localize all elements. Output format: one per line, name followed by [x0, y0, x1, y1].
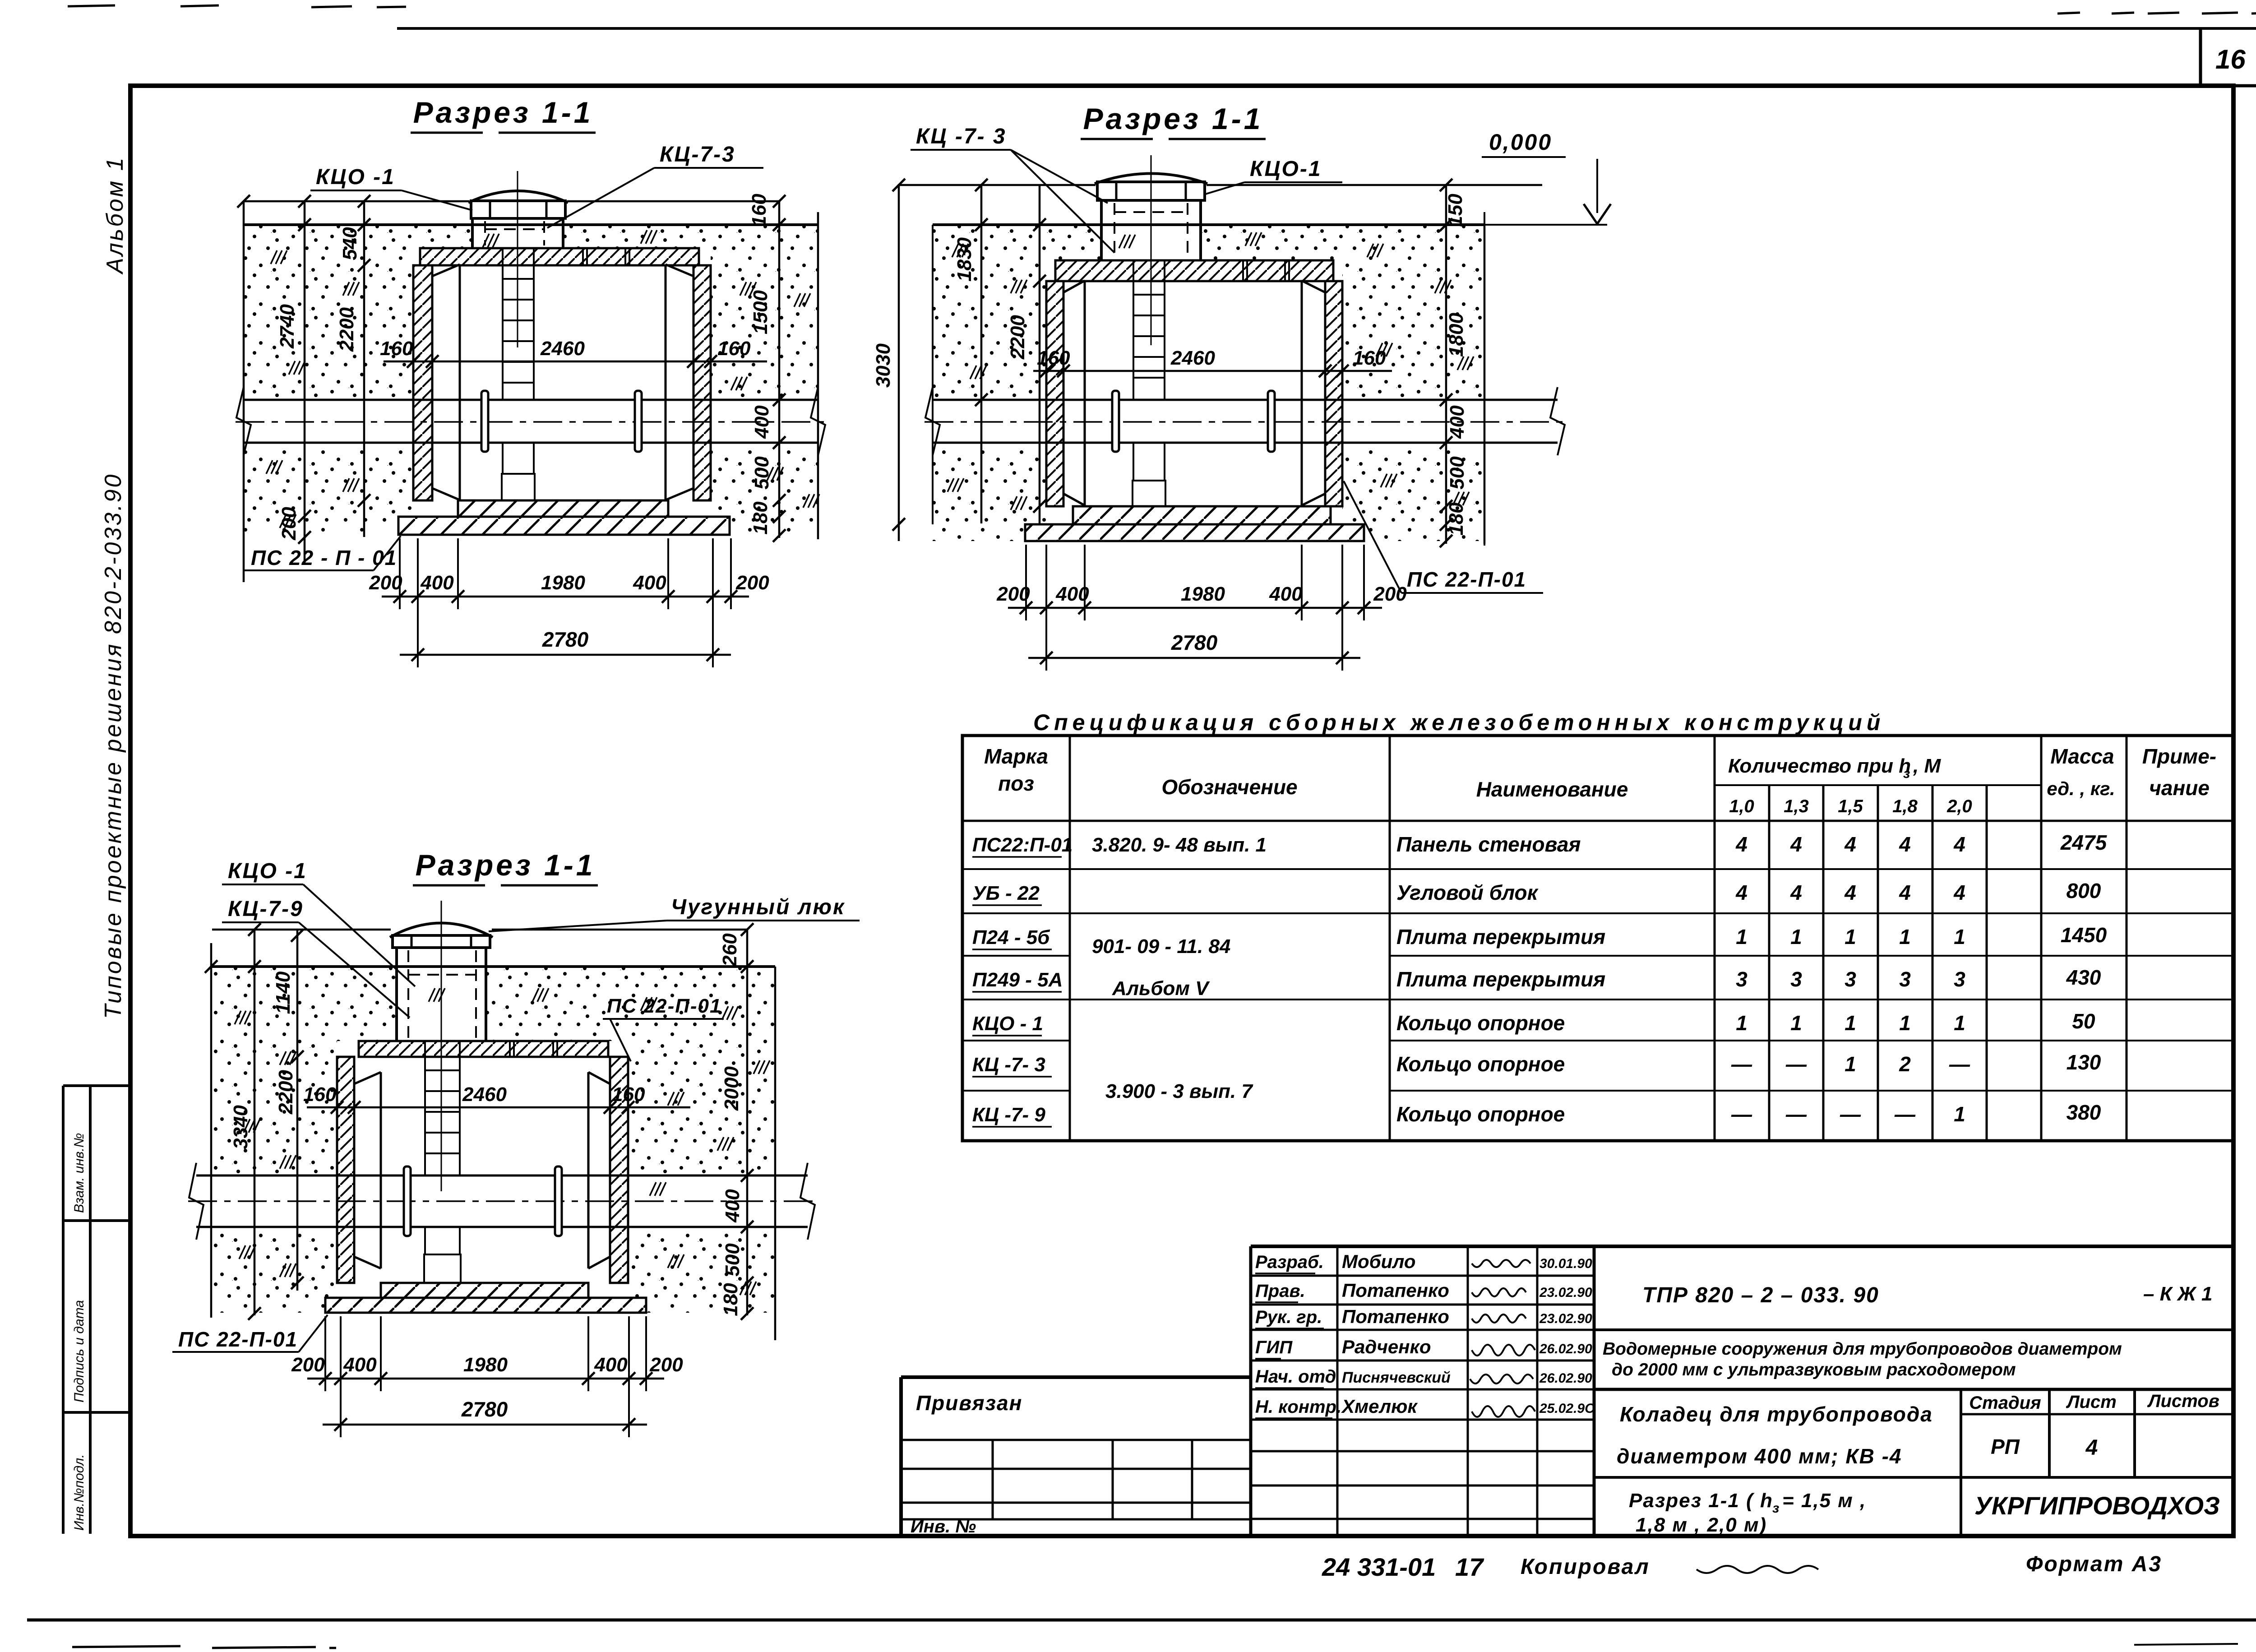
svg-text:1: 1: [1899, 925, 1911, 949]
svg-text:4: 4: [1735, 833, 1747, 856]
svg-text:КЦО -1: КЦО -1: [228, 859, 307, 883]
svg-text:1980: 1980: [1181, 583, 1225, 605]
svg-text:2780: 2780: [542, 628, 589, 651]
svg-text:Кольцо опорное: Кольцо опорное: [1396, 1102, 1565, 1126]
svg-text:—: —: [1840, 1102, 1861, 1126]
svg-text:4: 4: [2085, 1436, 2098, 1460]
svg-text:Панель стеновая: Панель стеновая: [1396, 833, 1581, 856]
svg-text:500: 500: [1446, 456, 1468, 490]
svg-text:Копировал: Копировал: [1521, 1555, 1650, 1579]
svg-text:400: 400: [420, 572, 454, 594]
svg-text:1: 1: [1954, 1011, 1965, 1035]
svg-text:1: 1: [1899, 1011, 1911, 1035]
svg-text:130: 130: [2066, 1050, 2101, 1074]
svg-text:50: 50: [2072, 1009, 2095, 1033]
svg-text:2780: 2780: [461, 1397, 508, 1421]
svg-text:1: 1: [1790, 925, 1802, 949]
svg-text:Прав.: Прав.: [1255, 1281, 1305, 1301]
svg-text:Плита перекрытия: Плита перекрытия: [1396, 967, 1605, 991]
svg-text:4: 4: [1790, 833, 1802, 856]
svg-text:1: 1: [1736, 1011, 1747, 1035]
svg-text:2460: 2460: [462, 1083, 507, 1106]
svg-text:КЦ-7-3: КЦ-7-3: [660, 143, 735, 167]
svg-text:200: 200: [1373, 583, 1407, 605]
svg-text:4: 4: [1953, 881, 1965, 904]
svg-text:1,8: 1,8: [1892, 796, 1918, 816]
svg-text:Разрез 1-1: Разрез 1-1: [413, 96, 593, 129]
svg-text:23.02.90: 23.02.90: [1539, 1285, 1592, 1300]
svg-text:Потапенко: Потапенко: [1342, 1280, 1449, 1301]
svg-text:400: 400: [1055, 583, 1089, 605]
svg-text:Кольцо опорное: Кольцо опорное: [1396, 1052, 1565, 1076]
svg-text:Угловой блок: Угловой блок: [1396, 881, 1539, 904]
svg-text:Подпись и дата: Подпись и дата: [72, 1300, 87, 1402]
svg-text:Инв.№подл.: Инв.№подл.: [72, 1454, 87, 1531]
svg-text:180: 180: [1445, 502, 1467, 536]
svg-text:400: 400: [343, 1354, 377, 1376]
svg-text:2,0: 2,0: [1946, 796, 1972, 816]
svg-text:з: з: [1772, 1501, 1779, 1516]
svg-text:, М: , М: [1913, 755, 1941, 777]
svg-text:—: —: [1731, 1052, 1752, 1076]
svg-text:КЦ-7-9: КЦ-7-9: [228, 897, 304, 921]
svg-text:1: 1: [1845, 1052, 1856, 1076]
svg-text:1980: 1980: [541, 572, 585, 594]
svg-text:2200: 2200: [1007, 315, 1029, 360]
svg-text:1450: 1450: [2061, 923, 2107, 947]
svg-text:УКРГИПРОВОДХОЗ: УКРГИПРОВОДХОЗ: [1974, 1491, 2220, 1520]
svg-text:1980: 1980: [463, 1354, 508, 1376]
svg-text:Водомерные сооружения для т: Водомерные сооружения для трубопроводов …: [1603, 1339, 2122, 1359]
svg-text:поз: поз: [998, 772, 1034, 795]
svg-text:1830: 1830: [953, 237, 975, 282]
svg-text:КЦО-1: КЦО-1: [1250, 157, 1322, 181]
svg-text:2780: 2780: [1171, 631, 1218, 654]
svg-text:1: 1: [1845, 925, 1856, 949]
svg-text:380: 380: [2066, 1101, 2101, 1124]
svg-text:200: 200: [369, 572, 402, 594]
svg-text:160: 160: [303, 1083, 337, 1106]
svg-text:Количество при h: Количество при h: [1728, 755, 1911, 777]
svg-text:ед. , кг.: ед. , кг.: [2047, 778, 2115, 799]
svg-text:3.820. 9- 48 вып. 1: 3.820. 9- 48 вып. 1: [1092, 834, 1267, 856]
svg-text:Альбом V: Альбом V: [1112, 977, 1210, 1000]
svg-text:Разрез 1-1 ( h: Разрез 1-1 ( h: [1629, 1490, 1773, 1512]
svg-text:2475: 2475: [2060, 831, 2108, 854]
svg-text:КЦ -7- 9: КЦ -7- 9: [972, 1104, 1045, 1126]
svg-text:1,3: 1,3: [1784, 796, 1809, 816]
svg-text:16: 16: [2215, 44, 2246, 74]
svg-text:1,0: 1,0: [1729, 796, 1754, 816]
svg-text:3: 3: [1845, 967, 1856, 991]
svg-text:2460: 2460: [1170, 347, 1215, 369]
svg-text:26.02.90: 26.02.90: [1539, 1371, 1592, 1386]
svg-text:500: 500: [721, 1243, 744, 1277]
svg-text:1800: 1800: [1445, 313, 1467, 357]
svg-text:160: 160: [1037, 347, 1070, 369]
svg-text:4: 4: [1953, 833, 1965, 856]
svg-text:200: 200: [735, 572, 769, 594]
svg-text:ГИП: ГИП: [1255, 1337, 1293, 1357]
svg-text:Разрез 1-1: Разрез 1-1: [1083, 102, 1263, 135]
svg-text:КЦО -1: КЦО -1: [316, 165, 395, 189]
svg-text:Марка: Марка: [984, 745, 1048, 768]
svg-text:30.01.90: 30.01.90: [1539, 1256, 1592, 1271]
svg-text:3: 3: [1736, 967, 1747, 991]
svg-text:Н. контр.: Н. контр.: [1255, 1397, 1341, 1417]
svg-text:Стадия: Стадия: [1969, 1393, 2041, 1413]
svg-text:з: з: [1903, 766, 1910, 781]
svg-text:Коладец для трубопровода: Коладец для трубопровода: [1620, 1402, 1933, 1426]
svg-text:25.02.9О: 25.02.9О: [1539, 1401, 1595, 1416]
svg-text:—: —: [1949, 1052, 1970, 1076]
svg-text:26.02.90: 26.02.90: [1539, 1342, 1592, 1356]
svg-text:Инв. №: Инв. №: [911, 1517, 976, 1536]
svg-text:ПС 22-П-01: ПС 22-П-01: [178, 1328, 298, 1351]
svg-text:Радченко: Радченко: [1342, 1336, 1431, 1357]
svg-text:Плита перекрытия: Плита перекрытия: [1396, 925, 1605, 949]
svg-text:Хмелюк: Хмелюк: [1341, 1396, 1418, 1417]
svg-text:Формат А3: Формат А3: [2026, 1552, 2162, 1576]
svg-text:1: 1: [1790, 1011, 1802, 1035]
svg-text:Листов: Листов: [2147, 1391, 2219, 1411]
svg-text:3030: 3030: [872, 343, 894, 388]
svg-text:Разраб.: Разраб.: [1255, 1252, 1324, 1272]
svg-text:ПС 22-П-01: ПС 22-П-01: [1407, 568, 1526, 591]
svg-text:Масса: Масса: [2050, 745, 2114, 768]
svg-text:3.900 - 3 вып. 7: 3.900 - 3 вып. 7: [1105, 1080, 1253, 1102]
svg-text:23.02.90: 23.02.90: [1539, 1311, 1592, 1326]
svg-text:4: 4: [1735, 881, 1747, 904]
svg-text:4: 4: [1790, 881, 1802, 904]
svg-text:чание: чание: [2149, 776, 2210, 800]
svg-text:3: 3: [1899, 967, 1911, 991]
svg-text:= 1,5 м ,: = 1,5 м ,: [1782, 1490, 1866, 1512]
svg-text:диаметром 400 мм; КВ -4: диаметром 400 мм; КВ -4: [1617, 1444, 1902, 1468]
svg-text:17: 17: [1455, 1553, 1484, 1581]
svg-text:1: 1: [1954, 925, 1965, 949]
svg-text:– К Ж 1: – К Ж 1: [2143, 1283, 2212, 1305]
svg-text:200: 200: [278, 507, 300, 541]
svg-text:160: 160: [380, 338, 413, 360]
svg-text:180: 180: [749, 501, 772, 535]
svg-text:3340: 3340: [230, 1105, 252, 1149]
svg-text:—: —: [1894, 1102, 1916, 1126]
svg-text:200: 200: [291, 1354, 325, 1376]
svg-text:200: 200: [649, 1354, 683, 1376]
svg-text:УБ - 22: УБ - 22: [972, 882, 1040, 904]
svg-text:400: 400: [594, 1354, 628, 1376]
svg-text:Нач. отд: Нач. отд: [1255, 1367, 1336, 1387]
svg-text:800: 800: [2066, 879, 2101, 902]
svg-text:1: 1: [1736, 925, 1747, 949]
svg-text:Писнячевский: Писнячевский: [1342, 1369, 1451, 1386]
svg-text:Чугунный люк: Чугунный люк: [671, 895, 845, 919]
svg-text:2200: 2200: [275, 1070, 297, 1115]
svg-text:ПС 22-П-01: ПС 22-П-01: [607, 995, 721, 1017]
svg-text:24 331-01: 24 331-01: [1322, 1553, 1436, 1581]
svg-text:1,5: 1,5: [1838, 796, 1863, 816]
svg-text:Лист: Лист: [2066, 1392, 2117, 1412]
svg-text:1,8 м , 2,0 м): 1,8 м , 2,0 м): [1636, 1514, 1767, 1536]
svg-text:—: —: [1785, 1102, 1807, 1126]
svg-text:Привязан: Привязан: [916, 1391, 1022, 1415]
svg-text:2460: 2460: [540, 338, 585, 360]
svg-text:Потапенко: Потапенко: [1342, 1306, 1449, 1327]
svg-text:КЦ -7- 3: КЦ -7- 3: [972, 1054, 1045, 1076]
svg-text:4: 4: [1899, 833, 1911, 856]
svg-text:1500: 1500: [749, 290, 772, 334]
svg-text:4: 4: [1844, 833, 1856, 856]
svg-text:150: 150: [1444, 194, 1466, 227]
svg-text:ТПР 820 – 2 – 033. 90: ТПР 820 – 2 – 033. 90: [1642, 1283, 1879, 1307]
svg-text:500: 500: [751, 456, 773, 490]
svg-text:ПС 22 - П - 01: ПС 22 - П - 01: [251, 546, 397, 569]
svg-text:4: 4: [1899, 881, 1911, 904]
svg-text:400: 400: [721, 1189, 744, 1223]
svg-text:160: 160: [1353, 347, 1386, 369]
svg-text:3: 3: [1954, 967, 1965, 991]
svg-text:Разрез 1-1: Разрез 1-1: [416, 848, 596, 882]
svg-text:0,000: 0,000: [1489, 130, 1552, 155]
svg-text:1: 1: [1845, 1011, 1856, 1035]
svg-text:П24 - 5б: П24 - 5б: [972, 926, 1050, 949]
svg-text:—: —: [1731, 1102, 1752, 1126]
svg-text:2200: 2200: [336, 307, 358, 352]
svg-text:430: 430: [2066, 966, 2101, 989]
svg-text:400: 400: [751, 405, 773, 439]
svg-text:400: 400: [633, 572, 666, 594]
svg-text:160: 160: [748, 194, 770, 227]
svg-text:Кольцо опорное: Кольцо опорное: [1396, 1011, 1565, 1035]
svg-text:Приме-: Приме-: [2142, 745, 2216, 768]
svg-text:1: 1: [1954, 1102, 1965, 1126]
svg-text:РП: РП: [1991, 1435, 2020, 1458]
svg-text:Рук. гр.: Рук. гр.: [1255, 1307, 1322, 1327]
svg-text:160: 160: [612, 1083, 645, 1106]
svg-text:1140: 1140: [272, 971, 294, 1014]
svg-text:КЦО - 1: КЦО - 1: [972, 1013, 1043, 1035]
svg-text:200: 200: [996, 583, 1030, 605]
svg-text:260: 260: [719, 933, 741, 967]
svg-text:Обозначение: Обозначение: [1161, 775, 1297, 799]
svg-text:400: 400: [1446, 405, 1468, 439]
svg-text:400: 400: [1269, 583, 1303, 605]
svg-text:160: 160: [717, 338, 751, 360]
svg-text:3: 3: [1790, 967, 1802, 991]
svg-text:П249 - 5А: П249 - 5А: [972, 969, 1063, 991]
svg-text:901- 09 - 11. 84: 901- 09 - 11. 84: [1092, 935, 1230, 958]
svg-text:ПС22:П-01: ПС22:П-01: [972, 834, 1073, 856]
svg-text:2: 2: [1899, 1052, 1911, 1076]
svg-text:Альбом 1: Альбом 1: [102, 156, 128, 275]
svg-text:2740: 2740: [276, 304, 298, 349]
svg-text:Типовые проектные решения 820-: Типовые проектные решения 820-2-033.90: [100, 473, 126, 1019]
svg-text:Взам. инв.№: Взам. инв.№: [72, 1133, 87, 1213]
svg-text:—: —: [1785, 1052, 1807, 1076]
svg-text:КЦ -7- 3: КЦ -7- 3: [916, 125, 1007, 148]
svg-text:Мобило: Мобило: [1342, 1251, 1416, 1272]
svg-text:Наименование: Наименование: [1476, 777, 1628, 801]
svg-text:4: 4: [1844, 881, 1856, 904]
svg-text:до 2000 мм с ультразвуковым: до 2000 мм с ультразвуковым расходомером: [1612, 1360, 2016, 1379]
svg-text:180: 180: [720, 1283, 742, 1316]
svg-text:540: 540: [339, 227, 361, 260]
svg-text:2000: 2000: [721, 1066, 743, 1111]
svg-text:Спецификация сборных железоб: Спецификация сборных железобетонных конс…: [1033, 710, 1885, 735]
